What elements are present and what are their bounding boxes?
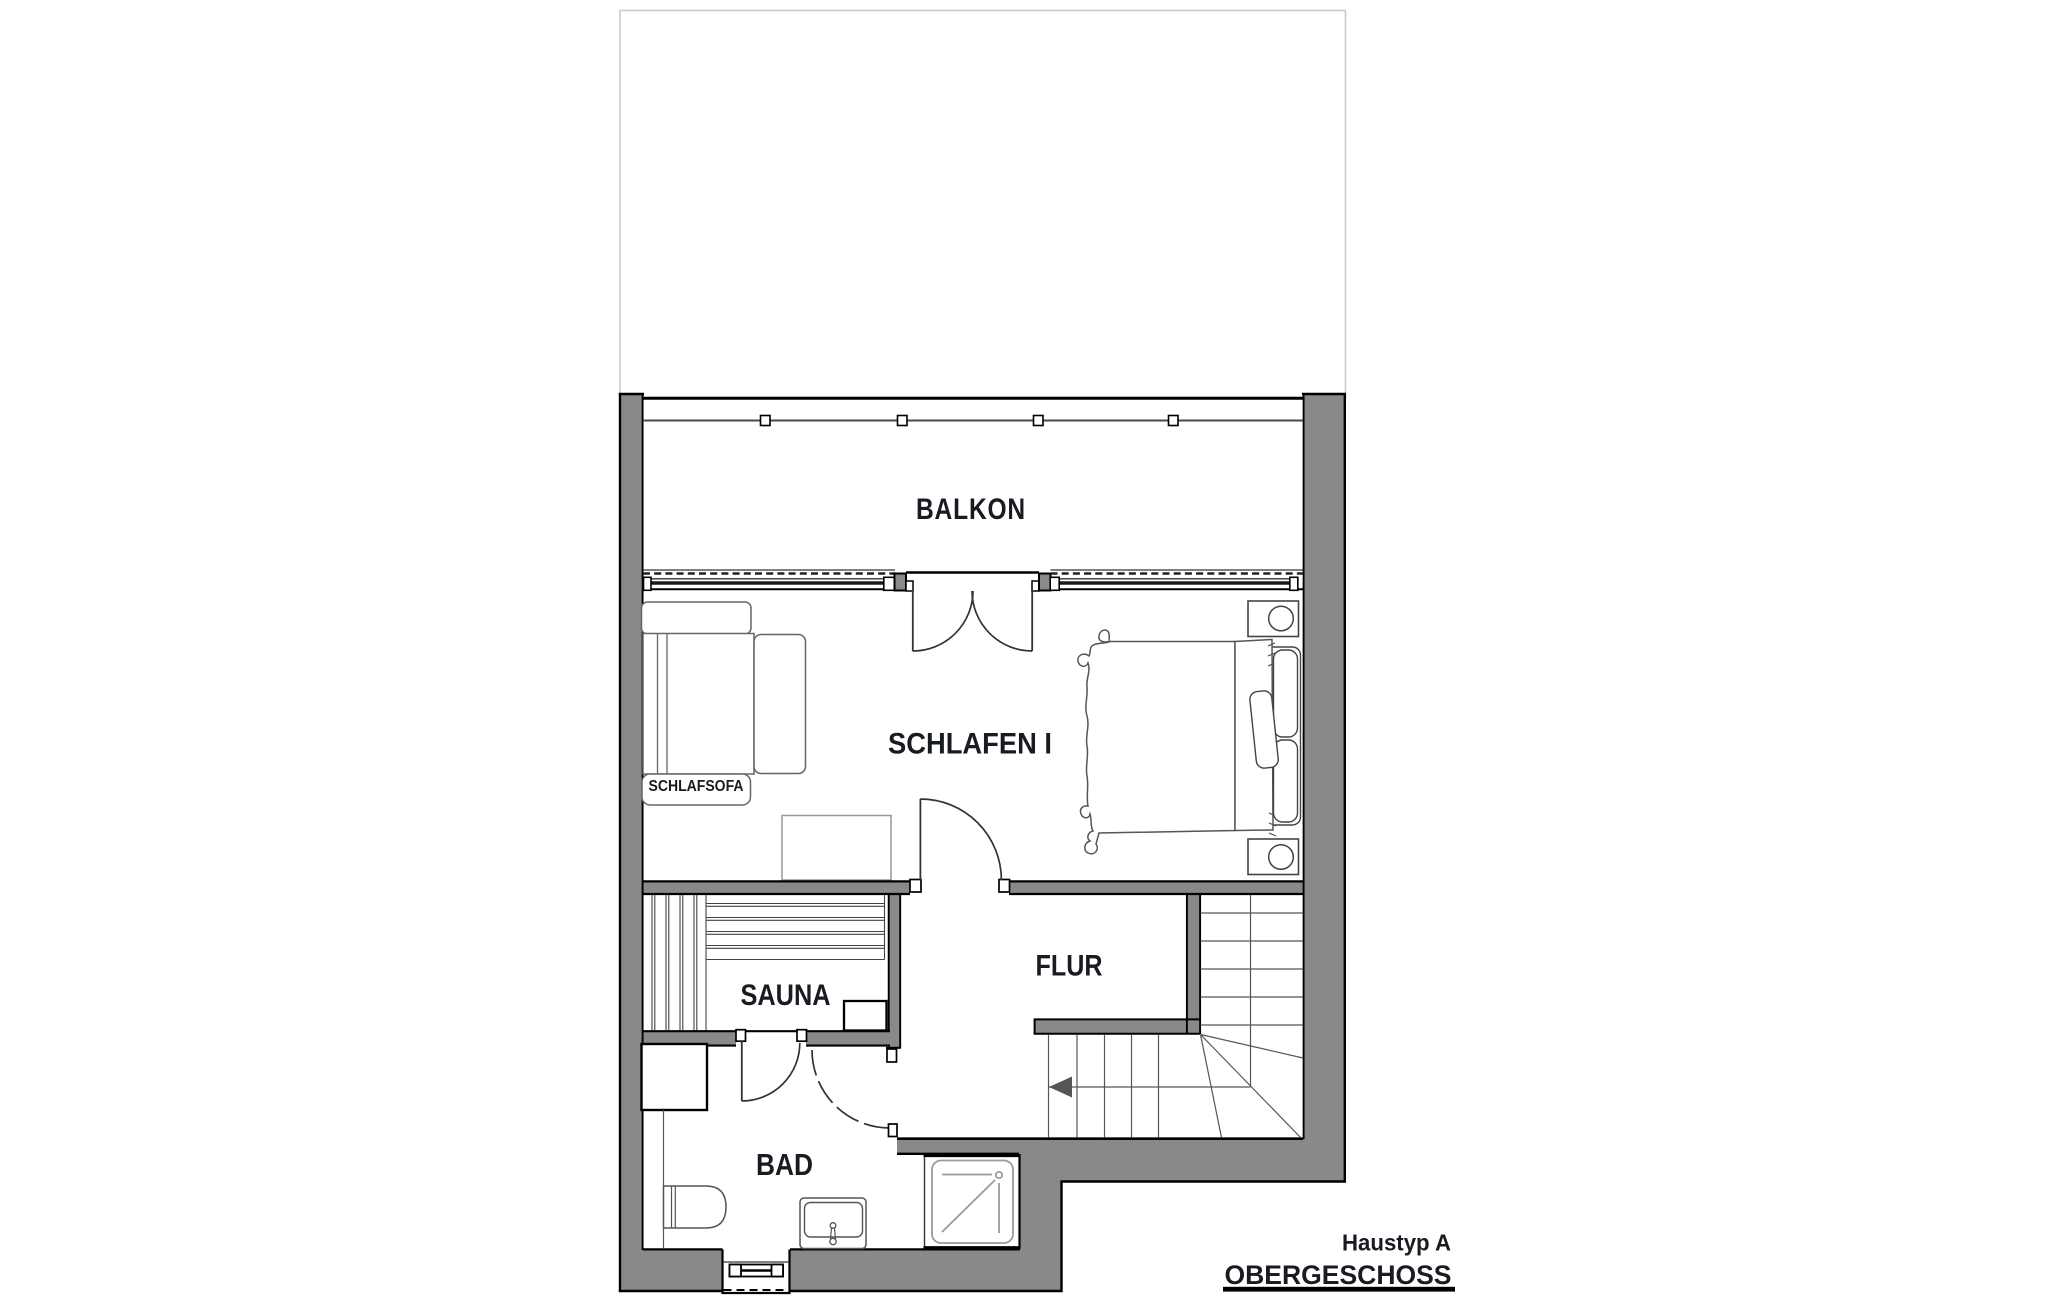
svg-text:SCHLAFEN I: SCHLAFEN I [888,728,1052,761]
svg-text:BALKON: BALKON [916,493,1026,526]
svg-text:BAD: BAD [756,1147,813,1182]
svg-text:FLUR: FLUR [1036,950,1103,983]
svg-text:OBERGESCHOSS: OBERGESCHOSS [1225,1260,1452,1290]
svg-text:SCHLAFSOFA: SCHLAFSOFA [649,778,744,795]
svg-text:Haustyp A: Haustyp A [1342,1230,1451,1256]
svg-text:SAUNA: SAUNA [741,979,831,1012]
